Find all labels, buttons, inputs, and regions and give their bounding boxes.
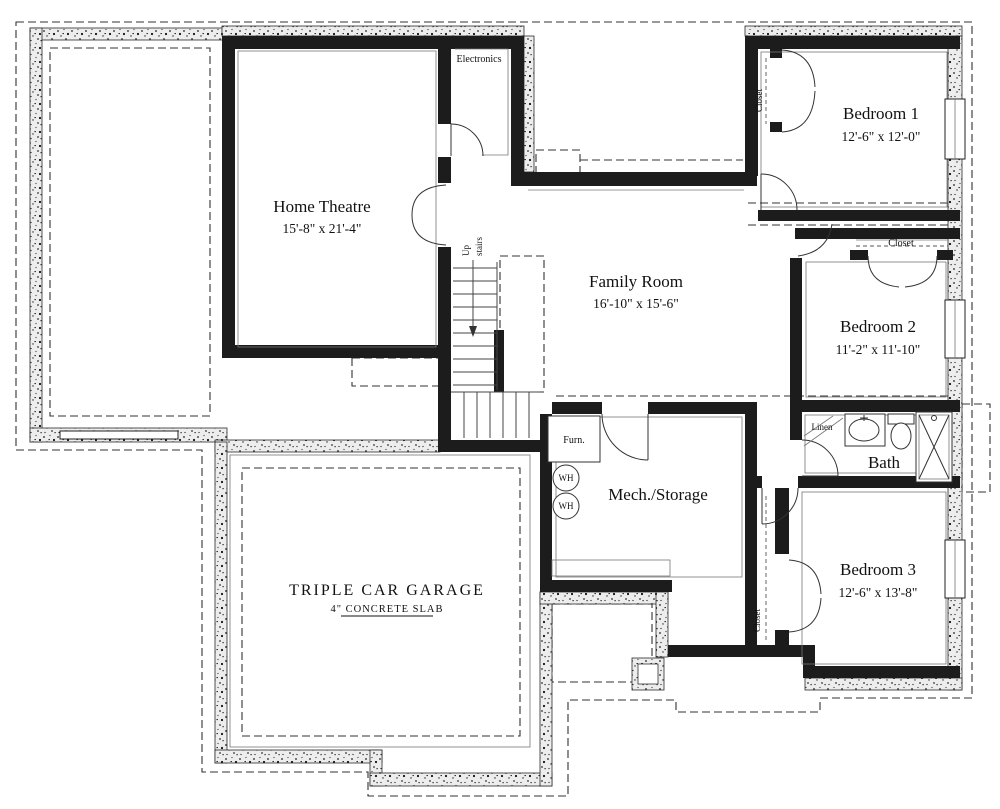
room-inner-lines xyxy=(230,49,948,747)
garage-label: TRIPLE CAR GARAGE xyxy=(289,582,485,599)
linen-label: Linen xyxy=(812,422,833,432)
bedroom1-closet-door-lower xyxy=(782,91,815,132)
bedroom1-closet-label: Closet xyxy=(754,88,764,112)
toilet-bowl xyxy=(891,423,911,449)
floor-plan-page: Home Theatre 15'-8" x 21'-4" Family Room… xyxy=(0,0,1000,809)
bedroom1-label: Bedroom 1 xyxy=(843,104,919,123)
theatre-footing-dashed-box xyxy=(352,358,442,386)
electronics-label: Electronics xyxy=(457,54,502,65)
bath-label: Bath xyxy=(868,453,901,472)
stairs-up-label: Up xyxy=(461,245,471,256)
bedroom3-closet-label: Closet xyxy=(752,608,762,632)
floor-plan-drawing: Home Theatre 15'-8" x 21'-4" Family Room… xyxy=(0,0,1000,809)
bedroom2-closet-door-left xyxy=(868,256,899,287)
bath-window-well-dashed xyxy=(962,404,990,492)
family-room-label: Family Room xyxy=(589,272,683,291)
bedroom2-closet-label: Closet xyxy=(888,238,914,249)
home-theatre-dims: 15'-8" x 21'-4" xyxy=(283,221,362,236)
unexcavated-inner-dashed xyxy=(50,48,210,416)
bedroom1-dims: 12'-6" x 12'-0" xyxy=(842,129,921,144)
family-room-dims: 16'-10" x 15'-6" xyxy=(593,296,679,311)
bedroom3-closet-door-lower xyxy=(789,598,821,632)
bedroom2-label: Bedroom 2 xyxy=(840,317,916,336)
bedroom3-closet-door-upper xyxy=(789,560,821,594)
bedroom2-closet-door-right xyxy=(905,256,937,287)
mech-workbench xyxy=(552,560,670,576)
stairs-label: Up stairs xyxy=(461,237,484,256)
furnace-label: Furn. xyxy=(563,435,584,446)
home-theatre-label: Home Theatre xyxy=(273,197,370,216)
garage-slab-note: 4" CONCRETE SLAB xyxy=(330,604,443,615)
stair-landing-dashed xyxy=(500,256,544,392)
garage-inner-dashed xyxy=(242,468,520,736)
water-heater-2-label: WH xyxy=(559,501,574,511)
sink xyxy=(849,419,879,441)
theatre-french-door-upper xyxy=(412,185,446,215)
foundation-vent xyxy=(60,431,178,439)
theatre-french-door-lower xyxy=(412,215,446,245)
stairs-word-label: stairs xyxy=(474,237,484,256)
bedroom3-dims: 12'-6" x 13'-8" xyxy=(839,585,918,600)
bedroom1-closet-door-upper xyxy=(782,50,815,87)
bedroom3-label: Bedroom 3 xyxy=(840,560,916,579)
mech-storage-label: Mech./Storage xyxy=(608,485,708,504)
bedroom2-dims: 11'-2" x 11'-10" xyxy=(836,342,921,357)
water-heater-1-label: WH xyxy=(559,473,574,483)
room-labels: Home Theatre 15'-8" x 21'-4" Family Room… xyxy=(273,54,920,632)
